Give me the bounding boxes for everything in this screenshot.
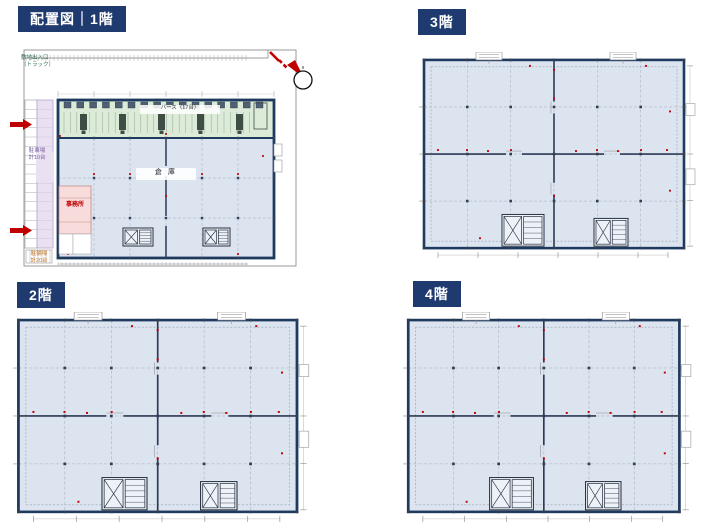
site-entrance-line1: 敷地出入口: [21, 55, 54, 62]
floor3-plan-drawing: [418, 52, 698, 262]
warehouse-label: 倉 庫: [136, 169, 196, 178]
upper-floor-shapes: [13, 312, 309, 522]
page: 配置図｜1階 3階 2階 4階 敷地出入口 （トラック） 駐車場 計10台 駐輪…: [0, 0, 708, 532]
site-plan-floor1-panel: 敷地出入口 （トラック） 駐車場 計10台 駐輪場 計20台 バース（17台） …: [8, 36, 320, 276]
parking-line2: 計10台: [21, 155, 53, 162]
bicycle-line1: 駐輪場: [21, 251, 57, 258]
office-label: 事務所: [59, 202, 91, 210]
floor3-title-badge: 3階: [418, 9, 466, 35]
floor4-title-badge: 4階: [413, 281, 461, 307]
site-entrance-label: 敷地出入口 （トラック）: [21, 55, 54, 69]
site-plan-shapes: [10, 50, 312, 266]
floor3-plan-panel: [418, 52, 698, 262]
upper-floor-shapes: [419, 52, 695, 258]
berth-label: バース（17台）: [140, 105, 220, 112]
floor2-plan-drawing: [12, 312, 312, 526]
floor4-plan-drawing: [402, 312, 694, 526]
bicycle-parking-label: 駐輪場 計20台: [21, 251, 57, 265]
upper-floor-shapes: [403, 312, 691, 522]
floor1-site-plan-drawing: [8, 36, 320, 274]
site-entrance-line2: （トラック）: [21, 62, 54, 69]
floor1-title-badge: 配置図｜1階: [18, 6, 126, 32]
bicycle-line2: 計20台: [21, 258, 57, 265]
parking-label: 駐車場 計10台: [21, 148, 53, 162]
parking-line1: 駐車場: [21, 148, 53, 155]
floor2-title-badge: 2階: [17, 282, 65, 308]
floor2-plan-panel: [12, 312, 312, 526]
floor4-plan-panel: [402, 312, 694, 526]
